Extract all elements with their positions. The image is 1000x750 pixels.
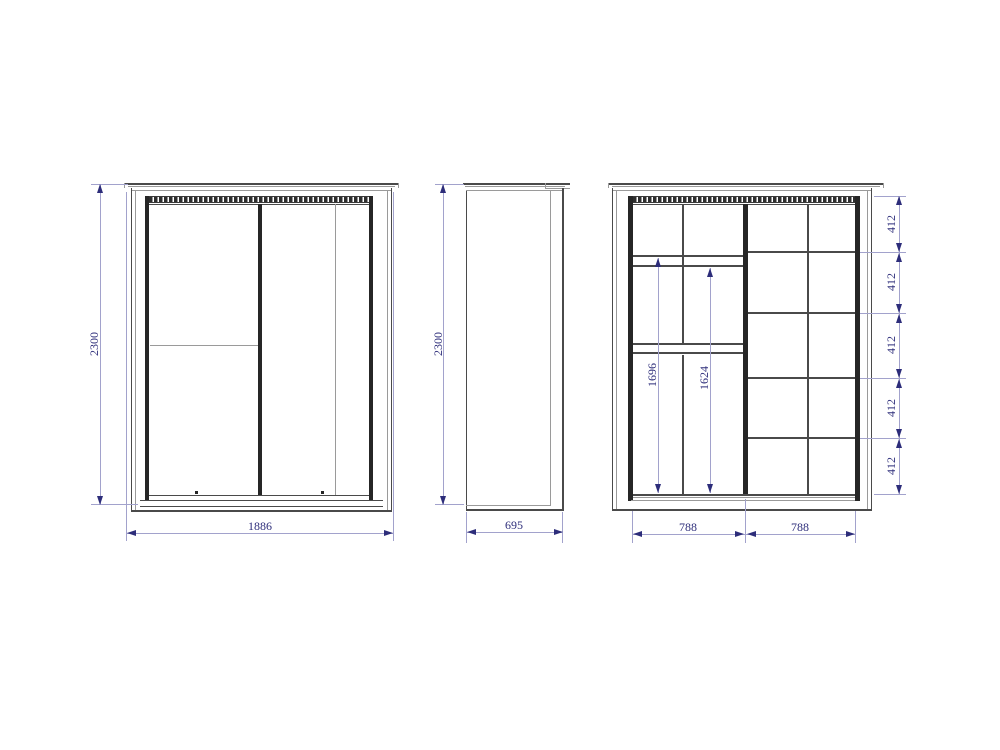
cornice-end-cap-left: [608, 183, 609, 188]
cornice-top-line: [608, 183, 884, 185]
dim-arrow-up: [655, 258, 661, 267]
dim-arrow-down: [896, 485, 902, 494]
dim-label-shelf-spacing: 412: [885, 262, 897, 302]
cornice-under-line: [612, 186, 880, 187]
dim-arrow-down: [896, 304, 902, 313]
left-wall-inner-line: [616, 191, 617, 509]
dim-arrow-up: [896, 379, 902, 388]
dim-arrow-down: [707, 484, 713, 493]
top-edge-line: [612, 190, 872, 191]
right-wall-inner-line: [867, 191, 868, 509]
dim-arrow-down: [896, 369, 902, 378]
dim-arrow-down: [896, 429, 902, 438]
dentil-molding: [633, 196, 855, 203]
left-wall-outer-line: [612, 188, 613, 510]
dim-arrow-right: [846, 531, 855, 537]
right-wall-outer-line: [871, 188, 872, 510]
internal-view: 1696 1624 412 412 412 412 412: [0, 0, 1000, 750]
hanging-rail-line: [633, 255, 743, 257]
dim-arrow-down: [655, 484, 661, 493]
dim-label-hang-height-1: 1696: [646, 355, 658, 395]
dim-arrow-right: [735, 531, 744, 537]
cornice-end-cap-right: [883, 183, 884, 188]
mid-shelf-bottom-line: [633, 352, 743, 354]
dim-label-shelf-spacing: 412: [885, 446, 897, 486]
dim-arrow-up: [896, 314, 902, 323]
shelf-line: [748, 377, 855, 379]
dim-arrow-left: [633, 531, 642, 537]
dim-arrow-down: [896, 243, 902, 252]
base-top-line: [631, 500, 855, 501]
dim-label-section-width-1: 788: [668, 521, 708, 533]
dim-label-shelf-spacing: 412: [885, 325, 897, 365]
right-partition: [807, 204, 809, 494]
shelf-line: [748, 251, 855, 253]
dim-label-hang-height-2: 1624: [698, 358, 710, 398]
extension-line: [632, 511, 633, 543]
right-pilaster: [855, 196, 860, 501]
dim-label-shelf-spacing: 412: [885, 388, 897, 428]
dim-arrow-up: [707, 268, 713, 277]
dim-label-shelf-spacing: 412: [885, 204, 897, 244]
shelf-line: [748, 437, 855, 439]
dim-arrow-left: [747, 531, 756, 537]
hanging-rail-line: [633, 265, 743, 267]
dim-arrow-up: [896, 253, 902, 262]
base-bottom-edge: [612, 509, 872, 511]
mid-shelf-top-line: [633, 343, 743, 345]
floor-under-line: [633, 497, 855, 498]
extension-line: [855, 511, 856, 543]
interior-floor-line: [633, 494, 855, 496]
left-pilaster: [628, 196, 633, 501]
central-divider: [743, 204, 748, 494]
shelf-line: [748, 312, 855, 314]
left-partition-upper: [682, 204, 684, 343]
dim-label-section-width-2: 788: [780, 521, 820, 533]
dimension-line: [899, 196, 900, 494]
extension-line: [745, 499, 746, 543]
left-partition-lower: [682, 355, 684, 494]
extension-line: [874, 494, 906, 495]
technical-drawing-canvas: 2300 1886 2300 695: [0, 0, 1000, 750]
